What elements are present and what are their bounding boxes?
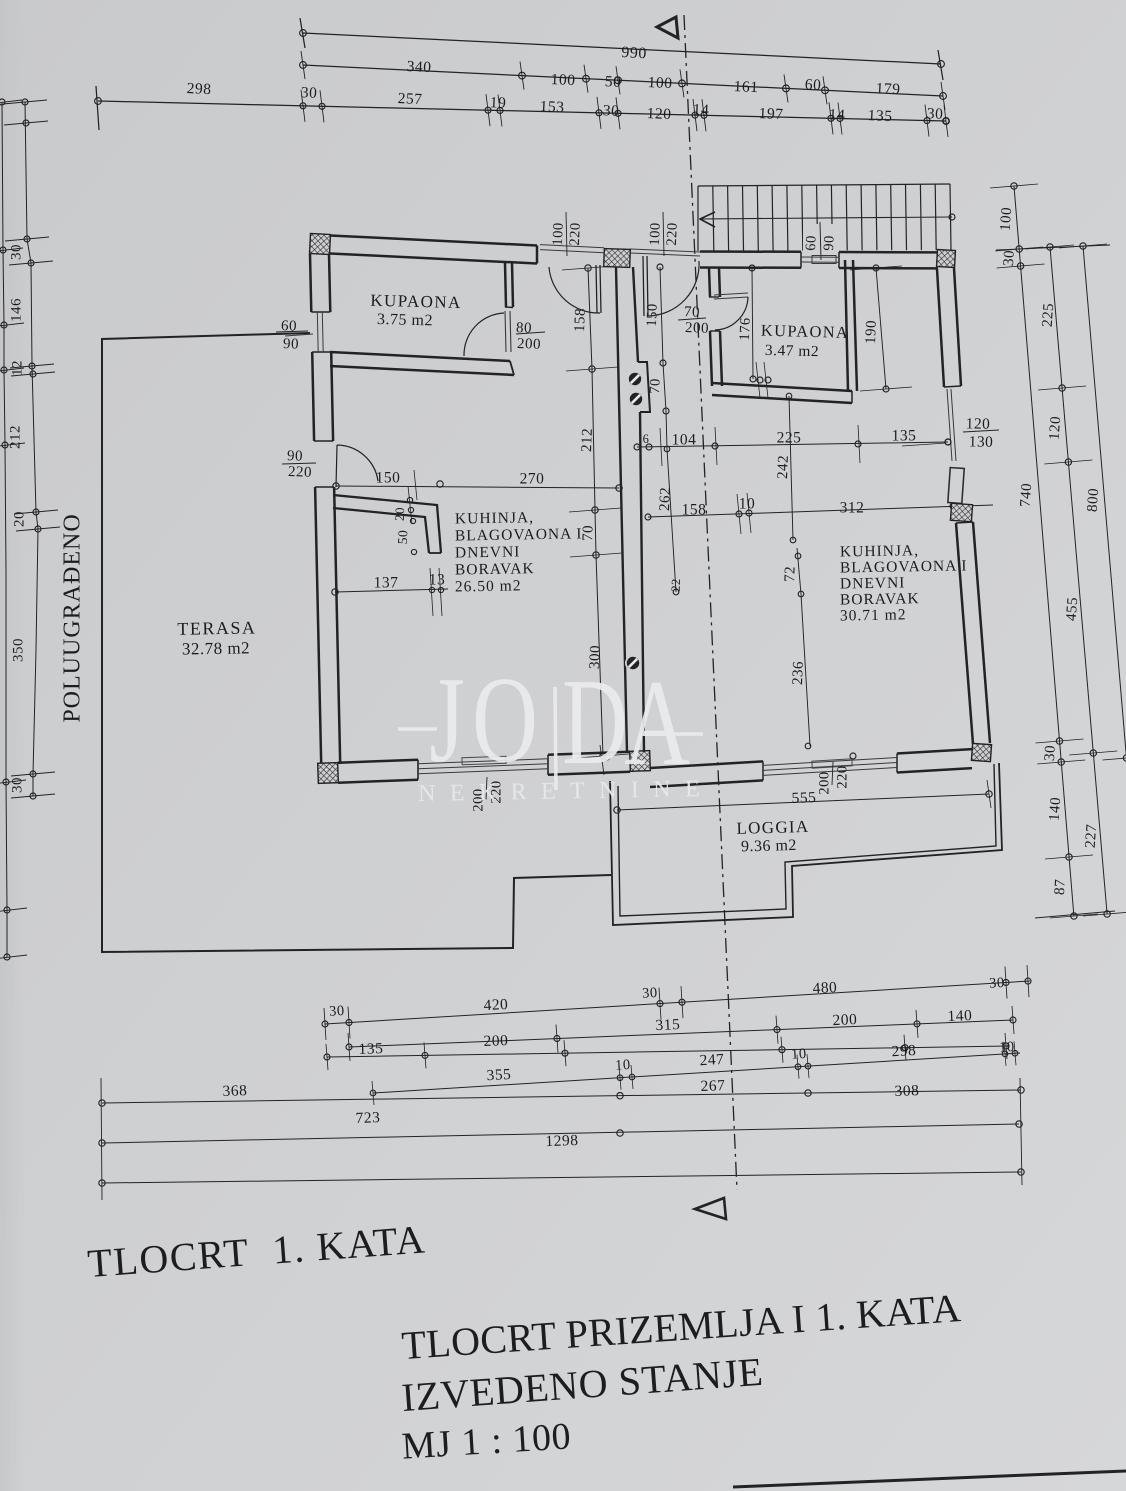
svg-text:212: 212 [7, 425, 23, 449]
svg-text:200: 200 [483, 1032, 508, 1050]
svg-text:30: 30 [989, 975, 1005, 992]
svg-text:90: 90 [283, 336, 300, 353]
svg-text:26.50 m2: 26.50 m2 [455, 577, 522, 595]
svg-text:247: 247 [699, 1051, 725, 1069]
svg-text:30: 30 [1042, 744, 1059, 761]
svg-text:308: 308 [894, 1082, 919, 1100]
svg-text:BORAVAK: BORAVAK [455, 560, 535, 578]
svg-text:J: J [429, 653, 464, 788]
svg-text:340: 340 [406, 58, 432, 76]
svg-text:100: 100 [550, 222, 567, 246]
svg-text:3.47 m2: 3.47 m2 [765, 342, 820, 360]
svg-text:120: 120 [646, 105, 672, 123]
svg-text:262: 262 [657, 487, 674, 512]
svg-text:13: 13 [429, 572, 446, 589]
svg-text:9.36 m2: 9.36 m2 [741, 837, 797, 855]
svg-text:60: 60 [803, 235, 820, 251]
svg-text:200: 200 [685, 320, 710, 337]
svg-text:220: 220 [834, 765, 850, 788]
svg-text:O: O [472, 653, 538, 788]
svg-text:120: 120 [965, 415, 990, 432]
svg-text:50: 50 [395, 529, 410, 544]
svg-text:146: 146 [8, 298, 24, 322]
svg-text:10: 10 [739, 496, 756, 513]
svg-text:298: 298 [891, 1042, 917, 1060]
svg-text:135: 135 [358, 1040, 383, 1058]
svg-text:257: 257 [397, 90, 423, 108]
svg-text:135: 135 [867, 107, 893, 125]
svg-text:130: 130 [968, 433, 993, 450]
svg-text:30.71 m2: 30.71 m2 [840, 606, 907, 624]
svg-text:KUPAONA: KUPAONA [370, 291, 462, 312]
svg-text:90: 90 [821, 235, 838, 251]
svg-text:70: 70 [647, 378, 664, 394]
svg-text:30: 30 [602, 102, 619, 120]
svg-text:10: 10 [791, 1046, 807, 1063]
svg-text:30: 30 [1001, 249, 1018, 266]
svg-text:30: 30 [300, 84, 317, 102]
svg-text:800: 800 [1085, 487, 1103, 512]
svg-text:298: 298 [186, 80, 212, 98]
svg-text:153: 153 [539, 98, 565, 116]
svg-text:14: 14 [828, 106, 845, 124]
svg-text:220: 220 [567, 222, 584, 246]
svg-text:236: 236 [790, 661, 807, 686]
svg-text:19: 19 [489, 94, 506, 112]
svg-text:137: 137 [374, 575, 399, 592]
svg-text:30: 30 [8, 244, 24, 260]
svg-text:350: 350 [10, 638, 26, 662]
svg-text:10: 10 [615, 1057, 631, 1074]
svg-text:1298: 1298 [545, 1132, 579, 1150]
svg-text:990: 990 [621, 44, 647, 62]
svg-text:190: 190 [863, 320, 880, 345]
svg-text:220: 220 [288, 464, 313, 481]
svg-text:200: 200 [816, 771, 832, 794]
svg-text:70: 70 [580, 525, 597, 542]
svg-text:315: 315 [655, 1016, 680, 1034]
svg-text:200: 200 [832, 1011, 857, 1029]
svg-text:20: 20 [11, 511, 27, 527]
svg-text:197: 197 [758, 105, 784, 123]
svg-text:480: 480 [812, 979, 838, 997]
svg-text:100: 100 [647, 222, 664, 246]
svg-text:87: 87 [1052, 878, 1069, 895]
svg-text:267: 267 [700, 1077, 725, 1095]
svg-text:555: 555 [791, 789, 816, 807]
svg-text:420: 420 [483, 996, 509, 1014]
svg-text:KUHINJA,: KUHINJA, [455, 509, 534, 527]
svg-text:200: 200 [517, 336, 542, 353]
svg-text:150: 150 [376, 470, 401, 487]
svg-text:100: 100 [550, 71, 576, 89]
svg-text:368: 368 [222, 1082, 247, 1100]
svg-text:20: 20 [392, 507, 407, 522]
svg-text:179: 179 [875, 80, 901, 98]
svg-text:60: 60 [804, 76, 821, 94]
svg-text:242: 242 [775, 455, 792, 480]
svg-text:10: 10 [999, 1039, 1015, 1056]
svg-text:BLAGOVAONA I: BLAGOVAONA I [455, 525, 583, 544]
svg-text:227: 227 [1083, 823, 1101, 848]
svg-text:22: 22 [669, 578, 683, 592]
svg-text:225: 225 [777, 430, 802, 447]
svg-text:723: 723 [355, 1109, 380, 1127]
svg-text:455: 455 [1064, 596, 1082, 621]
svg-text:740: 740 [1018, 482, 1036, 507]
svg-text:TERASA: TERASA [177, 617, 256, 638]
svg-text:POLUUGRAĐENO: POLUUGRAĐENO [60, 513, 86, 722]
svg-text:212: 212 [579, 428, 596, 453]
svg-text:30: 30 [329, 1003, 345, 1020]
svg-text:N E K R E T N I N E: N E K R E T N I N E [418, 776, 704, 807]
svg-text:6: 6 [643, 432, 650, 446]
svg-text:30: 30 [926, 105, 943, 123]
svg-text:D: D [562, 655, 628, 790]
svg-text:32.78 m2: 32.78 m2 [182, 638, 251, 658]
svg-text:312: 312 [840, 500, 865, 517]
svg-text:30: 30 [642, 985, 658, 1002]
svg-text:30: 30 [9, 777, 25, 793]
svg-text:140: 140 [947, 1007, 972, 1025]
svg-text:158: 158 [682, 502, 707, 519]
svg-text:161: 161 [733, 78, 759, 96]
svg-text:3.75 m2: 3.75 m2 [377, 311, 433, 329]
svg-text:72: 72 [782, 566, 799, 583]
svg-text:DNEVNI: DNEVNI [455, 543, 521, 561]
svg-text:14: 14 [692, 101, 709, 119]
svg-text:90: 90 [287, 448, 304, 465]
svg-text:100: 100 [998, 206, 1016, 231]
svg-text:270: 270 [520, 471, 545, 488]
svg-text:KUPAONA: KUPAONA [761, 321, 850, 342]
svg-text:LOGGIA: LOGGIA [736, 817, 809, 838]
svg-text:355: 355 [486, 1066, 512, 1084]
svg-text:50: 50 [604, 73, 621, 91]
svg-text:100: 100 [647, 74, 673, 92]
svg-text:220: 220 [664, 222, 681, 246]
svg-text:176: 176 [737, 317, 754, 341]
svg-text:150: 150 [644, 303, 661, 327]
svg-text:135: 135 [892, 428, 917, 445]
svg-text:120: 120 [1047, 415, 1065, 440]
svg-text:BORAVAK: BORAVAK [840, 590, 920, 608]
svg-text:225: 225 [1040, 302, 1058, 327]
svg-text:104: 104 [672, 432, 697, 449]
svg-text:A: A [624, 656, 690, 791]
svg-text:140: 140 [1047, 796, 1065, 821]
